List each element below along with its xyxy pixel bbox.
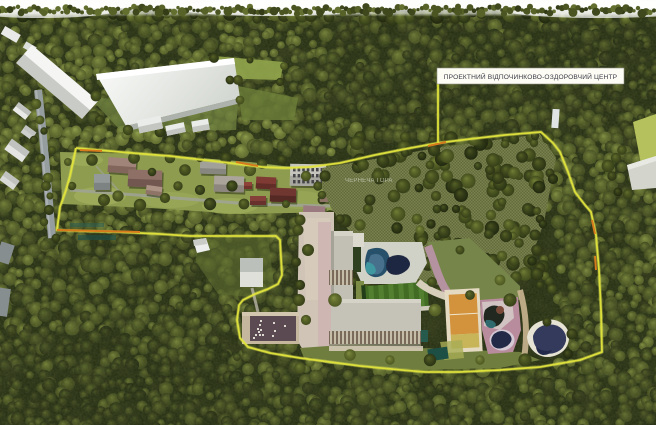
svg-text:ПРОЕКТНИЙ ВІДПОЧИНКОВО-ОЗДОРОВ: ПРОЕКТНИЙ ВІДПОЧИНКОВО-ОЗДОРОВЧИЙ ЦЕНТР bbox=[444, 72, 618, 81]
svg-text:ЧЕРНЕЧА ГОРА: ЧЕРНЕЧА ГОРА bbox=[345, 178, 393, 184]
